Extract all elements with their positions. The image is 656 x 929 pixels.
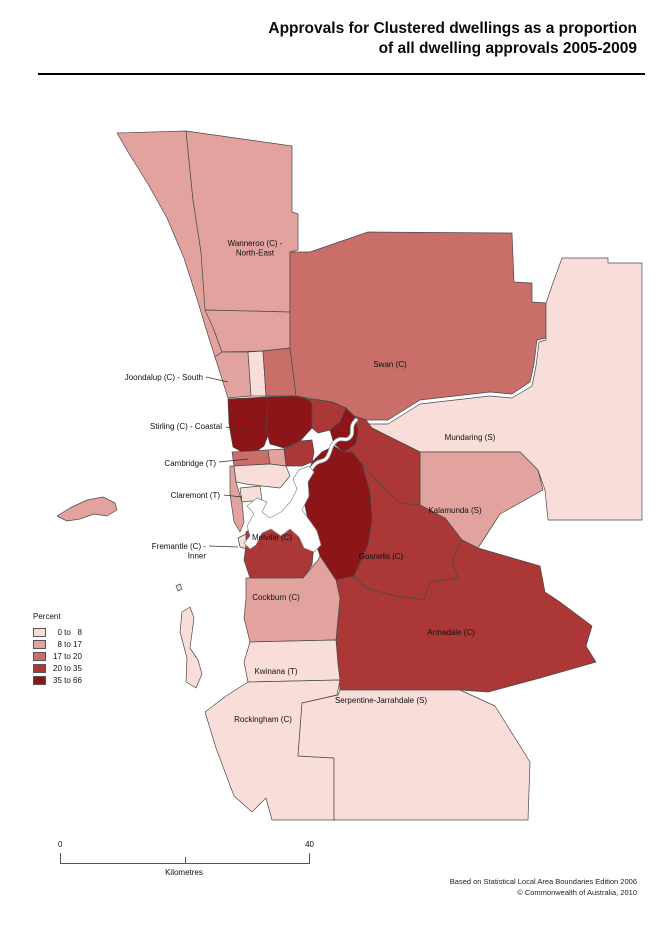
map-label-melville: Melville (C) bbox=[252, 533, 292, 542]
region-subiaco bbox=[268, 449, 286, 466]
map-label-swan: Swan (C) bbox=[373, 360, 407, 369]
map-label-armadale: Armadale (C) bbox=[427, 628, 475, 637]
region-nedlands bbox=[234, 464, 290, 488]
region-joondalup-south bbox=[215, 352, 251, 398]
legend-swatch-35to66 bbox=[33, 676, 46, 685]
map-label-serpentine: Serpentine-Jarrahdale (S) bbox=[335, 696, 427, 705]
legend-label: 20 to 35 bbox=[46, 664, 82, 673]
region-stirling-coastal bbox=[228, 397, 270, 453]
map-label-cockburn: Cockburn (C) bbox=[252, 593, 300, 602]
region-swan bbox=[290, 232, 546, 420]
source-note: Based on Statistical Local Area Boundari… bbox=[450, 876, 637, 898]
legend-item: 8 to 17 bbox=[33, 640, 82, 649]
scalebar-end-label: 40 bbox=[305, 840, 314, 849]
legend-swatch-20to35 bbox=[33, 664, 46, 673]
region-stirling-central bbox=[266, 396, 312, 448]
legend-label: 17 to 20 bbox=[46, 652, 82, 661]
legend-item: 35 to 66 bbox=[33, 676, 82, 685]
legend-swatch-8to17 bbox=[33, 640, 46, 649]
choropleth-map: Wanneroo (C) -North-EastSwan (C)Joondalu… bbox=[0, 0, 656, 929]
legend-item: 0 to 8 bbox=[33, 628, 82, 637]
map-label-fremantle: Fremantle (C) -Inner bbox=[152, 542, 207, 561]
map-label-stirling: Stirling (C) - Coastal bbox=[150, 422, 222, 431]
legend-label: 0 to 8 bbox=[46, 628, 82, 637]
scalebar-mid-tick bbox=[185, 857, 186, 863]
map-label-claremont: Claremont (T) bbox=[171, 491, 221, 500]
map-label-cambridge: Cambridge (T) bbox=[164, 459, 216, 468]
legend-title: Percent bbox=[33, 612, 82, 621]
source-line1: Based on Statistical Local Area Boundari… bbox=[450, 876, 637, 887]
map-label-rockingham: Rockingham (C) bbox=[234, 715, 292, 724]
map-label-kwinana: Kwinana (T) bbox=[254, 667, 297, 676]
legend-swatch-17to20 bbox=[33, 652, 46, 661]
scalebar-bar bbox=[60, 853, 310, 864]
map-report-page: Approvals for Clustered dwellings as a p… bbox=[0, 0, 656, 929]
map-label-gosnells: Gosnells (C) bbox=[359, 552, 404, 561]
map-label-kalamunda: Kalamunda (S) bbox=[428, 506, 482, 515]
source-line2: © Commonwealth of Australia, 2010 bbox=[450, 887, 637, 898]
legend-label: 8 to 17 bbox=[46, 640, 82, 649]
map-label-mundaring: Mundaring (S) bbox=[445, 433, 496, 442]
leader-line-fremantle bbox=[209, 546, 238, 547]
region-small-island bbox=[176, 584, 182, 591]
scalebar-units: Kilometres bbox=[60, 868, 308, 877]
legend-label: 35 to 66 bbox=[46, 676, 82, 685]
legend: Percent 0 to 8 8 to 17 17 to 20 20 to 35… bbox=[33, 612, 82, 688]
legend-swatch-0to8 bbox=[33, 628, 46, 637]
map-label-joondalup: Joondalup (C) - South bbox=[125, 373, 203, 382]
region-cambridge bbox=[232, 450, 270, 466]
legend-item: 17 to 20 bbox=[33, 652, 82, 661]
region-rottnest-island bbox=[57, 497, 117, 521]
region-garden-island bbox=[180, 607, 202, 688]
legend-item: 20 to 35 bbox=[33, 664, 82, 673]
scalebar-start-label: 0 bbox=[58, 840, 62, 849]
